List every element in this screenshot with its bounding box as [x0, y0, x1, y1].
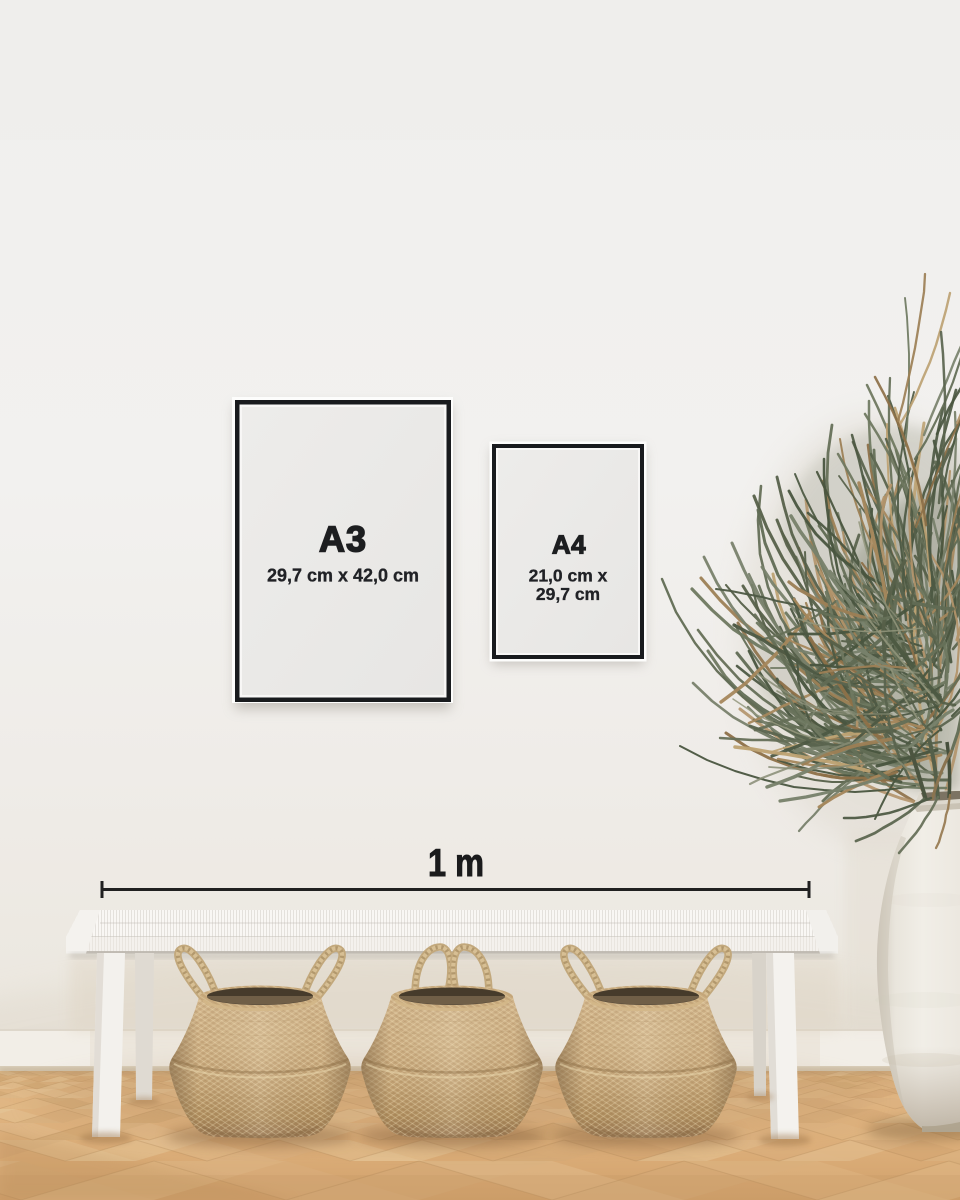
- svg-text:A3: A3: [319, 519, 367, 560]
- svg-text:21,0 cm x: 21,0 cm x: [529, 566, 608, 586]
- svg-text:1 m: 1 m: [428, 842, 484, 885]
- svg-text:29,7 cm: 29,7 cm: [536, 584, 600, 604]
- svg-text:A4: A4: [552, 530, 586, 560]
- svg-text:29,7 cm x 42,0 cm: 29,7 cm x 42,0 cm: [267, 566, 419, 586]
